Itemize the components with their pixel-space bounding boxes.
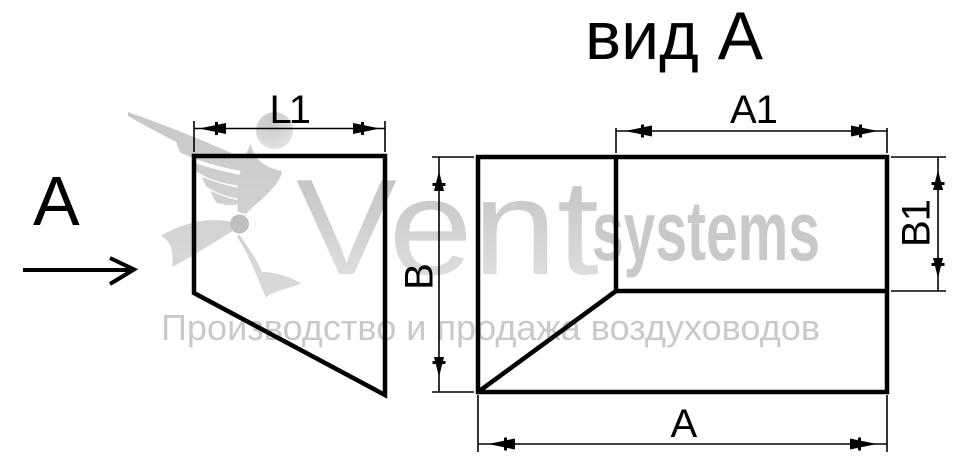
svg-text:вид А: вид А	[585, 0, 764, 74]
svg-text:A1: A1	[730, 88, 777, 132]
svg-text:Vent: Vent	[296, 151, 599, 303]
svg-text:L1: L1	[270, 88, 310, 132]
svg-text:B1: B1	[895, 200, 939, 247]
svg-text:A: A	[671, 402, 698, 446]
svg-text:systems: systems	[592, 184, 820, 278]
svg-text:А: А	[33, 162, 80, 240]
svg-text:B: B	[398, 263, 442, 290]
